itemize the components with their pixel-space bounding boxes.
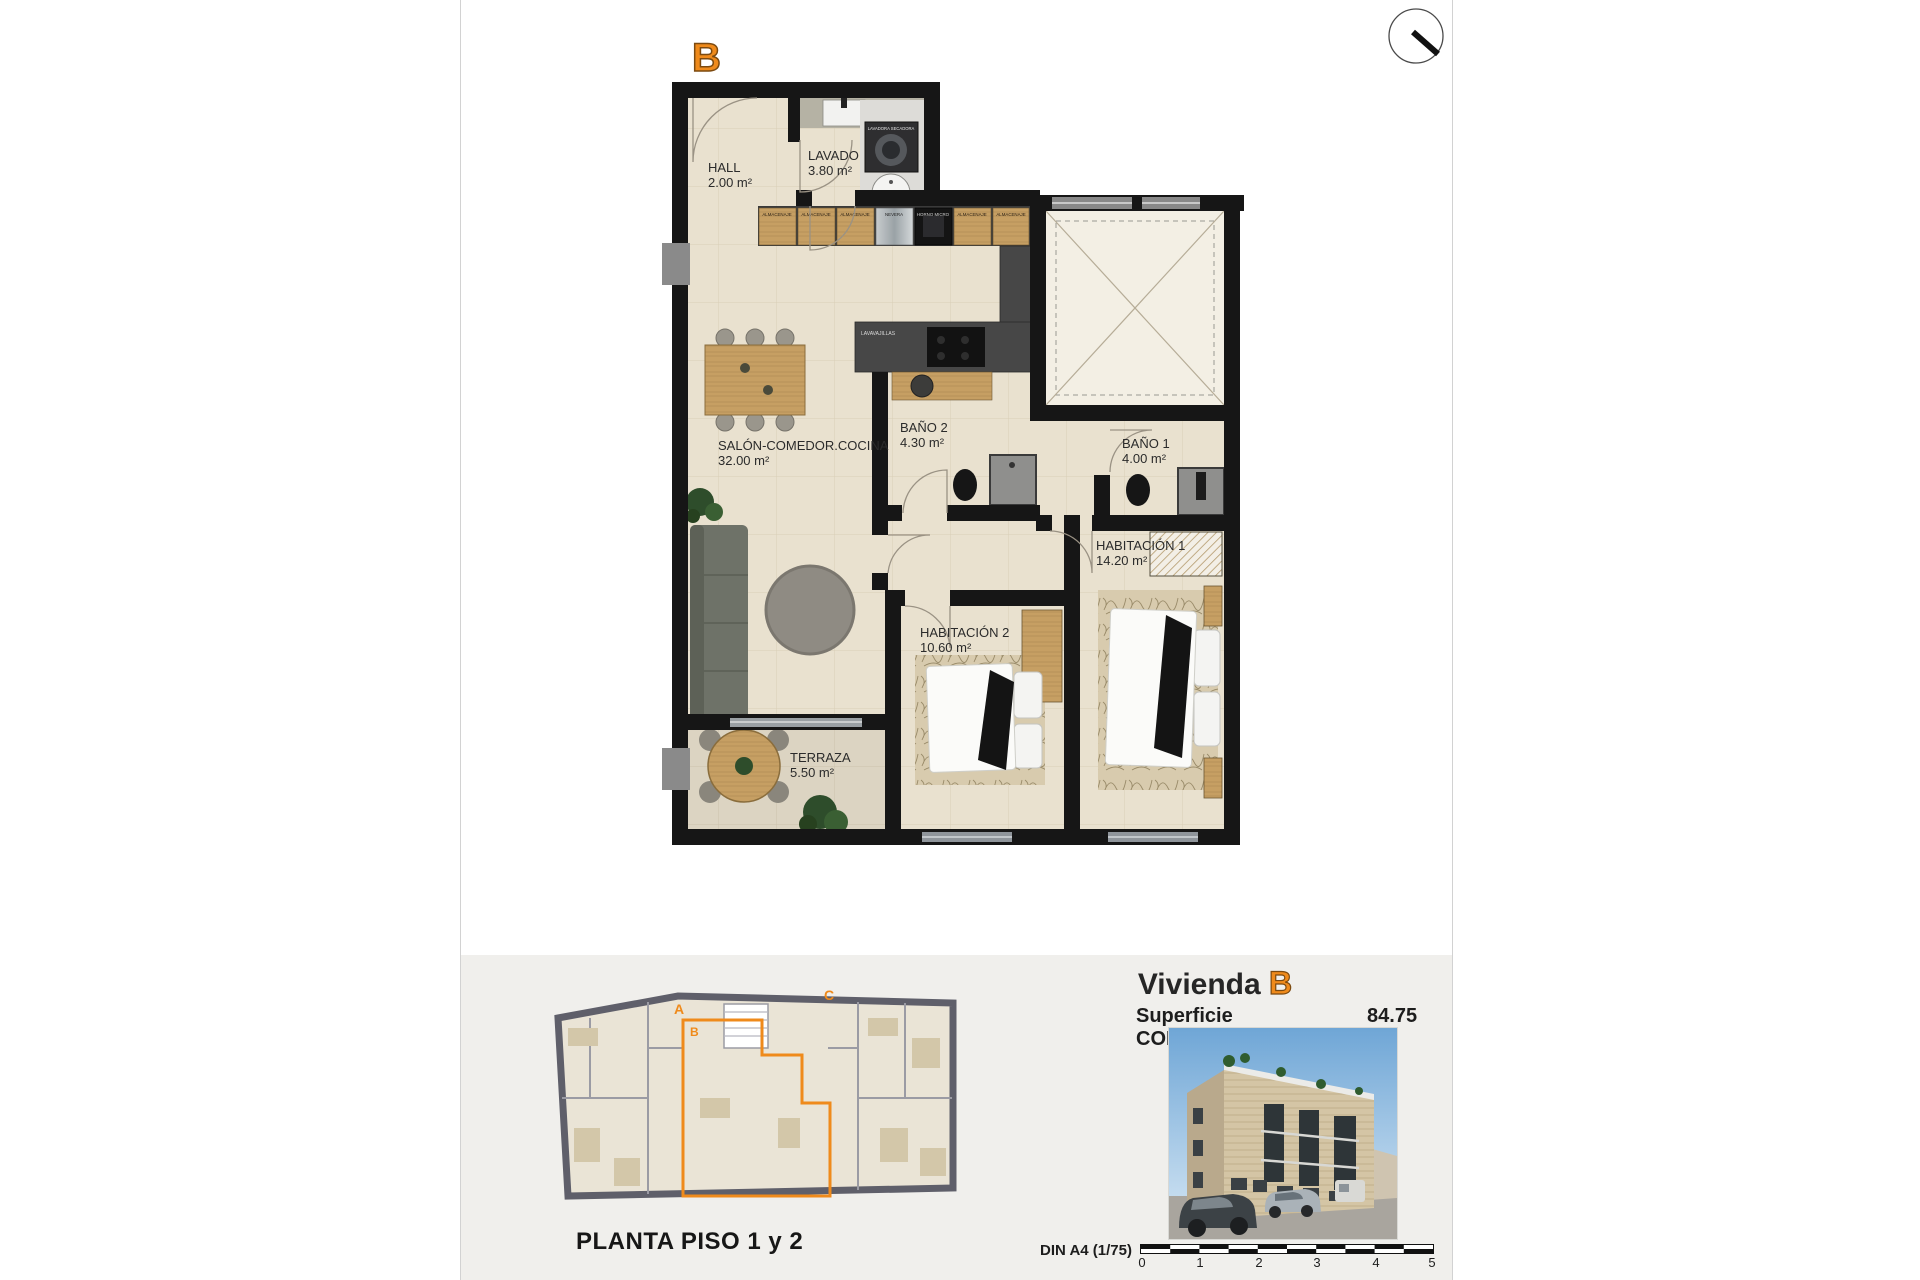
svg-text:C: C xyxy=(824,987,834,1003)
svg-text:4.30 m²: 4.30 m² xyxy=(900,435,945,450)
svg-text:4.00 m²: 4.00 m² xyxy=(1122,451,1167,466)
svg-text:3.80 m²: 3.80 m² xyxy=(808,163,853,178)
svg-text:2.00 m²: 2.00 m² xyxy=(708,175,753,190)
svg-text:ALMACENAJE: ALMACENAJE xyxy=(996,212,1025,217)
scale-bar xyxy=(1140,1244,1434,1254)
kitchen-cabinet-row: ALMACENAJE ALMACENAJE ALMACENAJE NEVERA … xyxy=(758,206,1030,246)
page-border-right xyxy=(1452,0,1453,1280)
svg-text:10.60 m²: 10.60 m² xyxy=(920,640,972,655)
balcony-recesses xyxy=(1264,1104,1356,1190)
svg-text:ALMACENAJE: ALMACENAJE xyxy=(957,212,986,217)
dining-set xyxy=(705,329,805,431)
overview-plan: A B C xyxy=(528,978,968,1223)
sofa xyxy=(690,525,748,720)
svg-text:HALL: HALL xyxy=(708,160,741,175)
svg-text:SALÓN-COMEDOR.COCINA: SALÓN-COMEDOR.COCINA xyxy=(718,438,889,453)
vivienda-title-prefix: Vivienda xyxy=(1138,968,1261,1001)
washer-dryer: LAVADORA SECADORA xyxy=(865,122,918,172)
flyer-page: { "page": { "unit_badge": "B" }, "floor_… xyxy=(0,0,1920,1280)
svg-text:ALMACENAJE: ALMACENAJE xyxy=(762,212,791,217)
svg-text:B: B xyxy=(690,1025,699,1039)
svg-text:A: A xyxy=(674,1001,684,1017)
overview-caption: PLANTA PISO 1 y 2 xyxy=(576,1228,803,1256)
scale-label: DIN A4 (1/75) xyxy=(1020,1242,1132,1259)
svg-text:HABITACIÓN 1: HABITACIÓN 1 xyxy=(1096,538,1185,553)
floor-plan: LAVADORA SECADORA AEROTERMIA ALMACENAJE … xyxy=(660,70,1260,860)
svg-text:BAÑO 1: BAÑO 1 xyxy=(1122,436,1170,451)
svg-text:LAVADORA SECADORA: LAVADORA SECADORA xyxy=(868,126,915,131)
svg-text:5.50 m²: 5.50 m² xyxy=(790,765,835,780)
svg-text:32.00 m²: 32.00 m² xyxy=(718,453,770,468)
svg-text:14.20 m²: 14.20 m² xyxy=(1096,553,1148,568)
svg-text:NEVERA: NEVERA xyxy=(885,212,903,217)
svg-text:ALMACENAJE: ALMACENAJE xyxy=(801,212,830,217)
svg-text:TERRAZA: TERRAZA xyxy=(790,750,851,765)
svg-text:HABITACIÓN 2: HABITACIÓN 2 xyxy=(920,625,1009,640)
building-photo xyxy=(1168,1027,1398,1240)
svg-text:LAVAVAJILLAS: LAVAVAJILLAS xyxy=(861,331,896,337)
patio-lightwell xyxy=(1046,211,1224,405)
svg-text:LAVADO: LAVADO xyxy=(808,148,859,163)
round-rug xyxy=(766,566,854,654)
svg-text:BAÑO 2: BAÑO 2 xyxy=(900,420,948,435)
svg-text:HORNO MICRO: HORNO MICRO xyxy=(917,212,950,217)
vivienda-title: Vivienda B xyxy=(1100,965,1330,1002)
north-arrow-icon xyxy=(1386,6,1446,66)
vivienda-title-unit: B xyxy=(1269,965,1292,1001)
